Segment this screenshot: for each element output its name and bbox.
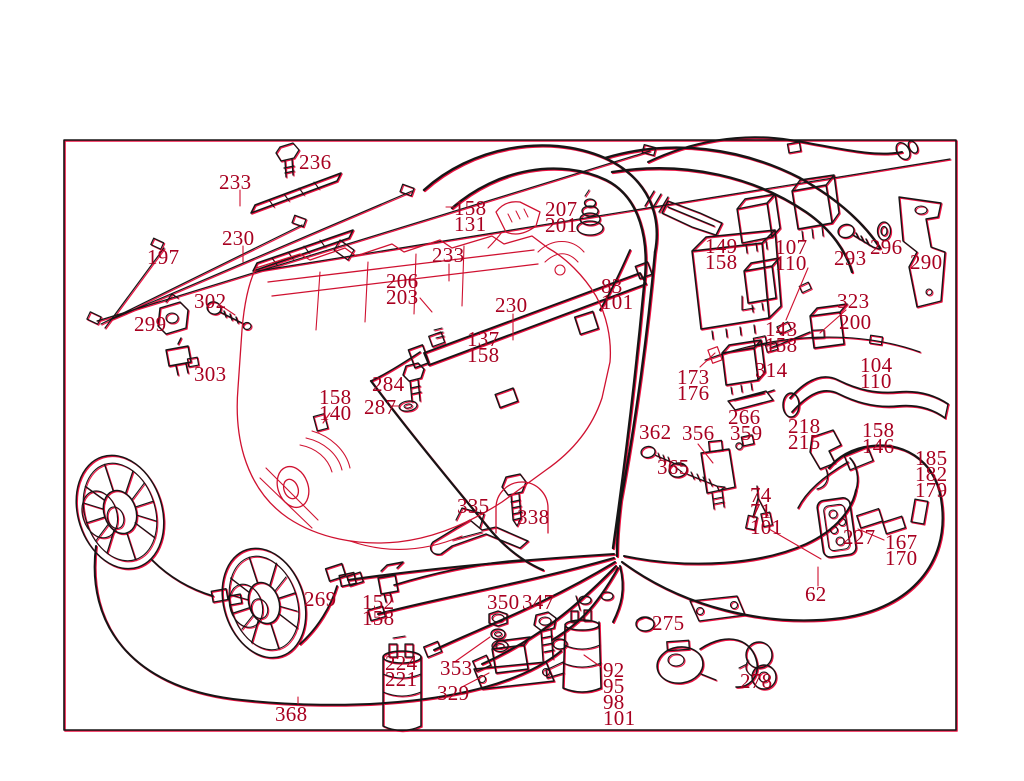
part-number-text: 350 <box>487 594 519 610</box>
part-number-text: 287 <box>364 399 396 415</box>
wiring-harness-main <box>371 137 902 570</box>
part-number-label: 143158 <box>765 321 797 353</box>
part-number-label: 62 <box>805 586 827 602</box>
part-number-text: 233 <box>219 174 251 190</box>
part-number-text: 365 <box>657 459 689 475</box>
part-number-text: 98 <box>603 694 635 710</box>
part-number-label: 290 <box>910 254 942 270</box>
part-number-label: 104110 <box>860 357 892 389</box>
part-number-label: 158146 <box>862 422 894 454</box>
part-number-text: 83 <box>601 278 633 294</box>
bar-266-icon <box>728 390 774 410</box>
part-number-text: 92 <box>603 662 635 678</box>
part-number-text: 323 <box>837 293 869 309</box>
wiring-harness-branches <box>339 446 943 672</box>
part-number-label: 233 <box>432 247 464 263</box>
engine-block-drawing <box>237 236 610 549</box>
part-number-label: 314 <box>755 362 787 378</box>
part-number-text: 207 <box>545 201 577 217</box>
part-number-text: 95 <box>603 678 635 694</box>
part-number-label: 173176 <box>677 369 709 401</box>
part-number-label: 158140 <box>319 389 351 421</box>
part-number-text: 224 <box>385 655 417 671</box>
part-number-text: 101 <box>750 519 782 535</box>
part-number-label: 227 <box>843 529 875 545</box>
part-number-label: 218215 <box>788 418 820 450</box>
part-number-text: 197 <box>147 249 179 265</box>
rail-233-drawing <box>251 173 341 213</box>
part-number-text: 71 <box>750 503 782 519</box>
part-number-text: 131 <box>454 216 486 232</box>
part-number-text: 158 <box>319 389 351 405</box>
wire-clips-143 <box>705 282 920 360</box>
part-number-text: 158 <box>362 610 394 626</box>
sensor-356-icon <box>701 440 735 509</box>
plate-227-icon <box>816 497 857 558</box>
part-number-text: 236 <box>299 154 331 170</box>
part-number-text: 296 <box>870 239 902 255</box>
part-number-text: 101 <box>603 710 635 726</box>
part-number-text: 110 <box>860 373 892 389</box>
part-number-label: 278 <box>740 673 772 689</box>
part-number-label: 338 <box>517 509 549 525</box>
part-number-text: 200 <box>839 314 871 330</box>
part-number-text: 353 <box>440 660 472 676</box>
part-number-text: 167 <box>885 534 917 550</box>
part-number-label: 230 <box>495 297 527 313</box>
parts-diagram-canvas: 2362332301971581312072012332062032308310… <box>0 0 1024 781</box>
part-number-text: 203 <box>386 289 418 305</box>
part-number-label: 158131 <box>454 200 486 232</box>
part-number-text: 303 <box>194 366 226 382</box>
cooling-fan-right <box>209 537 320 668</box>
part-number-text: 158 <box>705 254 737 270</box>
part-number-label: 152158 <box>362 594 394 626</box>
part-number-text: 356 <box>682 425 714 441</box>
part-number-label: 230 <box>222 230 254 246</box>
part-number-label: 303 <box>194 366 226 382</box>
part-number-label: 350 <box>487 594 519 610</box>
part-number-label: 266 <box>728 409 760 425</box>
part-number-text: 329 <box>437 685 469 701</box>
part-number-label: 185182179 <box>915 450 947 498</box>
part-number-text: 173 <box>677 369 709 385</box>
part-number-text: 158 <box>765 337 797 353</box>
engine-harness-line-art <box>0 0 1024 781</box>
part-number-text: 176 <box>677 385 709 401</box>
part-number-text: 314 <box>755 362 787 378</box>
part-number-label: 207201 <box>545 201 577 233</box>
part-number-text: 368 <box>275 706 307 722</box>
part-number-text: 140 <box>319 405 351 421</box>
part-number-text: 284 <box>372 376 404 392</box>
part-number-label: 284 <box>372 376 404 392</box>
bracket-290-icon <box>899 197 945 307</box>
part-number-text: 110 <box>775 255 807 271</box>
part-number-text: 266 <box>728 409 760 425</box>
part-number-label: 296 <box>870 239 902 255</box>
part-number-label: 335 <box>457 498 489 514</box>
part-number-label: 323 <box>837 293 869 309</box>
part-number-text: 201 <box>545 217 577 233</box>
part-number-text: 278 <box>740 673 772 689</box>
part-number-text: 101 <box>601 294 633 310</box>
part-number-text: 299 <box>134 316 166 332</box>
part-number-text: 152 <box>362 594 394 610</box>
part-number-label: 353 <box>440 660 472 676</box>
part-number-label: 299 <box>134 316 166 332</box>
part-number-text: 293 <box>834 250 866 266</box>
part-number-text: 275 <box>652 615 684 631</box>
washer-296-icon <box>878 222 891 240</box>
part-number-label: 347 <box>522 594 554 610</box>
part-number-label: 275 <box>652 615 684 631</box>
sensor-207-icon <box>577 190 603 235</box>
part-number-text: 146 <box>862 438 894 454</box>
part-number-text: 104 <box>860 357 892 373</box>
part-number-text: 218 <box>788 418 820 434</box>
connector-173-icon <box>708 347 722 364</box>
part-number-text: 149 <box>705 238 737 254</box>
coil-92-icon <box>546 596 601 692</box>
part-number-text: 179 <box>915 482 947 498</box>
part-number-label: 7471101 <box>750 487 782 535</box>
cooling-fan-left <box>62 444 178 580</box>
part-number-text: 206 <box>386 273 418 289</box>
part-number-text: 137 <box>467 331 499 347</box>
bolt-347-icon <box>534 612 556 661</box>
part-number-text: 290 <box>910 254 942 270</box>
part-number-label: 365 <box>657 459 689 475</box>
part-number-text: 362 <box>639 424 671 440</box>
part-number-label: 83101 <box>601 278 633 310</box>
part-number-text: 215 <box>788 434 820 450</box>
part-number-text: 347 <box>522 594 554 610</box>
part-number-label: 149158 <box>705 238 737 270</box>
part-number-label: 356 <box>682 425 714 441</box>
part-number-label: 236 <box>299 154 331 170</box>
part-number-label: 107110 <box>775 239 807 271</box>
ring-353-icon <box>491 629 505 639</box>
part-number-text: 269 <box>304 591 336 607</box>
connectors-167-185-icons <box>798 447 928 534</box>
part-number-text: 107 <box>775 239 807 255</box>
part-number-label: 167170 <box>885 534 917 566</box>
part-number-label: 233 <box>219 174 251 190</box>
part-number-text: 335 <box>457 498 489 514</box>
part-number-label: 137158 <box>467 331 499 363</box>
part-number-label: 329 <box>437 685 469 701</box>
part-number-text: 359 <box>730 425 762 441</box>
part-number-label: 362 <box>639 424 671 440</box>
part-number-label: 224221 <box>385 655 417 687</box>
part-number-label: 359 <box>730 425 762 441</box>
bolt-236-icon <box>276 143 299 177</box>
part-number-text: 185 <box>915 450 947 466</box>
part-number-label: 293 <box>834 250 866 266</box>
part-number-label: 929598101 <box>603 662 635 726</box>
part-number-label: 200 <box>839 314 871 330</box>
part-number-text: 182 <box>915 466 947 482</box>
part-number-label: 269 <box>304 591 336 607</box>
part-number-text: 158 <box>467 347 499 363</box>
part-number-text: 230 <box>495 297 527 313</box>
part-number-label: 197 <box>147 249 179 265</box>
part-number-text: 158 <box>454 200 486 216</box>
part-number-label: 206203 <box>386 273 418 305</box>
part-number-text: 230 <box>222 230 254 246</box>
part-number-text: 170 <box>885 550 917 566</box>
part-number-text: 221 <box>385 671 417 687</box>
part-number-text: 62 <box>805 586 827 602</box>
part-number-label: 302 <box>194 293 226 309</box>
part-number-label: 368 <box>275 706 307 722</box>
part-number-text: 74 <box>750 487 782 503</box>
part-number-text: 158 <box>862 422 894 438</box>
part-number-text: 143 <box>765 321 797 337</box>
part-number-text: 227 <box>843 529 875 545</box>
part-number-text: 338 <box>517 509 549 525</box>
part-number-label: 287 <box>364 399 396 415</box>
part-number-text: 302 <box>194 293 226 309</box>
part-number-text: 233 <box>432 247 464 263</box>
